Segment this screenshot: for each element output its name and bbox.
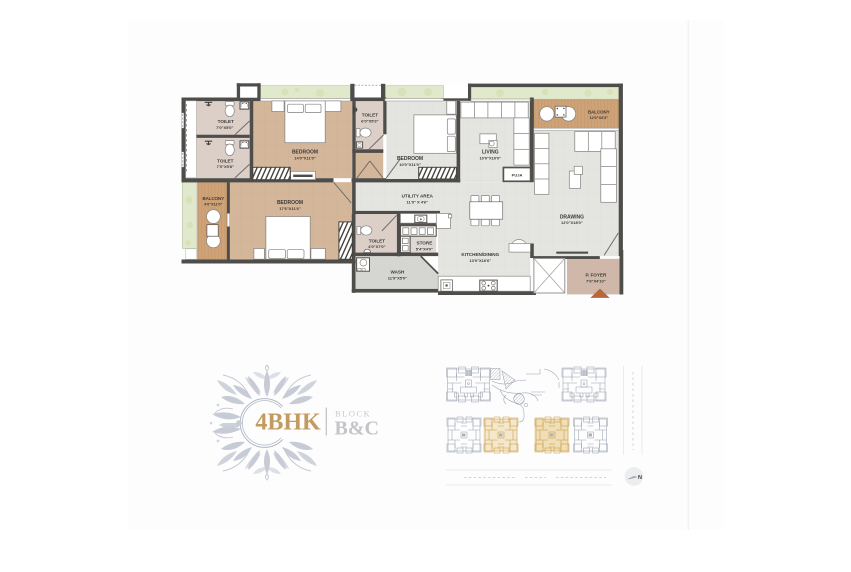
svg-text:TOILET: TOILET bbox=[362, 113, 378, 118]
svg-text:P. FOYER: P. FOYER bbox=[585, 273, 607, 278]
svg-text:4'0"X11'0": 4'0"X11'0" bbox=[204, 202, 222, 206]
svg-text:BALCONY: BALCONY bbox=[202, 196, 224, 201]
svg-text:10'0"X11'0": 10'0"X11'0" bbox=[399, 162, 421, 167]
svg-text:11'9" X 4'6": 11'9" X 4'6" bbox=[407, 200, 429, 205]
svg-text:UTILITY AREA: UTILITY AREA bbox=[402, 194, 434, 199]
svg-text:13'0"X16'6": 13'0"X16'6" bbox=[469, 258, 491, 263]
svg-text:12'0"X18'0": 12'0"X18'0" bbox=[561, 220, 583, 225]
svg-text:4BHK: 4BHK bbox=[255, 410, 321, 436]
svg-text:7'0"X5'8": 7'0"X5'8" bbox=[217, 164, 234, 169]
svg-text:7'0"X5'0": 7'0"X5'0" bbox=[216, 125, 233, 130]
svg-text:7'6"X4'10": 7'6"X4'10" bbox=[586, 279, 606, 284]
svg-text:PUJA: PUJA bbox=[512, 173, 523, 178]
svg-text:WASH: WASH bbox=[391, 269, 405, 274]
svg-text:6'0"X5'3": 6'0"X5'3" bbox=[361, 118, 378, 123]
svg-text:KITCHEN/DINING: KITCHEN/DINING bbox=[461, 252, 499, 257]
svg-text:11'9"X5'0": 11'9"X5'0" bbox=[388, 275, 407, 280]
svg-text:14'0"X11'0": 14'0"X11'0" bbox=[294, 155, 316, 160]
svg-text:5'4"X4'0": 5'4"X4'0" bbox=[416, 246, 433, 251]
svg-text:TOILET: TOILET bbox=[369, 238, 385, 243]
svg-text:BALCONY: BALCONY bbox=[588, 110, 610, 115]
svg-text:12'0"X4'3": 12'0"X4'3" bbox=[590, 116, 609, 120]
svg-text:4'0"X7'0": 4'0"X7'0" bbox=[368, 244, 385, 249]
svg-text:10'0"X10'0": 10'0"X10'0" bbox=[479, 155, 501, 160]
svg-text:TOILET: TOILET bbox=[217, 158, 233, 163]
svg-text:B&C: B&C bbox=[335, 418, 379, 440]
svg-text:TOILET: TOILET bbox=[218, 119, 234, 124]
svg-text:17'6"X11'6": 17'6"X11'6" bbox=[279, 206, 301, 211]
svg-text:N: N bbox=[638, 475, 642, 481]
svg-text:STORE: STORE bbox=[417, 241, 433, 246]
